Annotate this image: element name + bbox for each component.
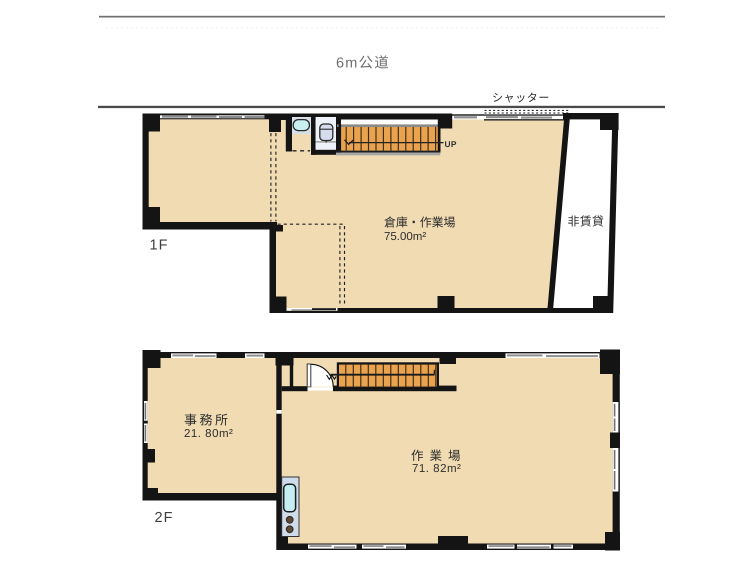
svg-text:71. 82m²: 71. 82m²	[412, 463, 461, 475]
svg-text:21. 80m²: 21. 80m²	[184, 428, 233, 440]
svg-text:6m公道: 6m公道	[336, 55, 390, 72]
svg-text:75.00m²: 75.00m²	[384, 231, 426, 243]
svg-text:非賃貸: 非賃貸	[568, 215, 605, 229]
svg-text:2F: 2F	[155, 510, 174, 526]
svg-text:作業場: 作業場	[411, 449, 467, 463]
svg-text:事務所: 事務所	[184, 412, 231, 427]
svg-text:倉庫・作業場: 倉庫・作業場	[384, 215, 456, 229]
svg-text:UP: UP	[445, 139, 457, 149]
svg-text:シャッター: シャッター	[492, 93, 550, 105]
svg-text:1F: 1F	[150, 237, 169, 253]
